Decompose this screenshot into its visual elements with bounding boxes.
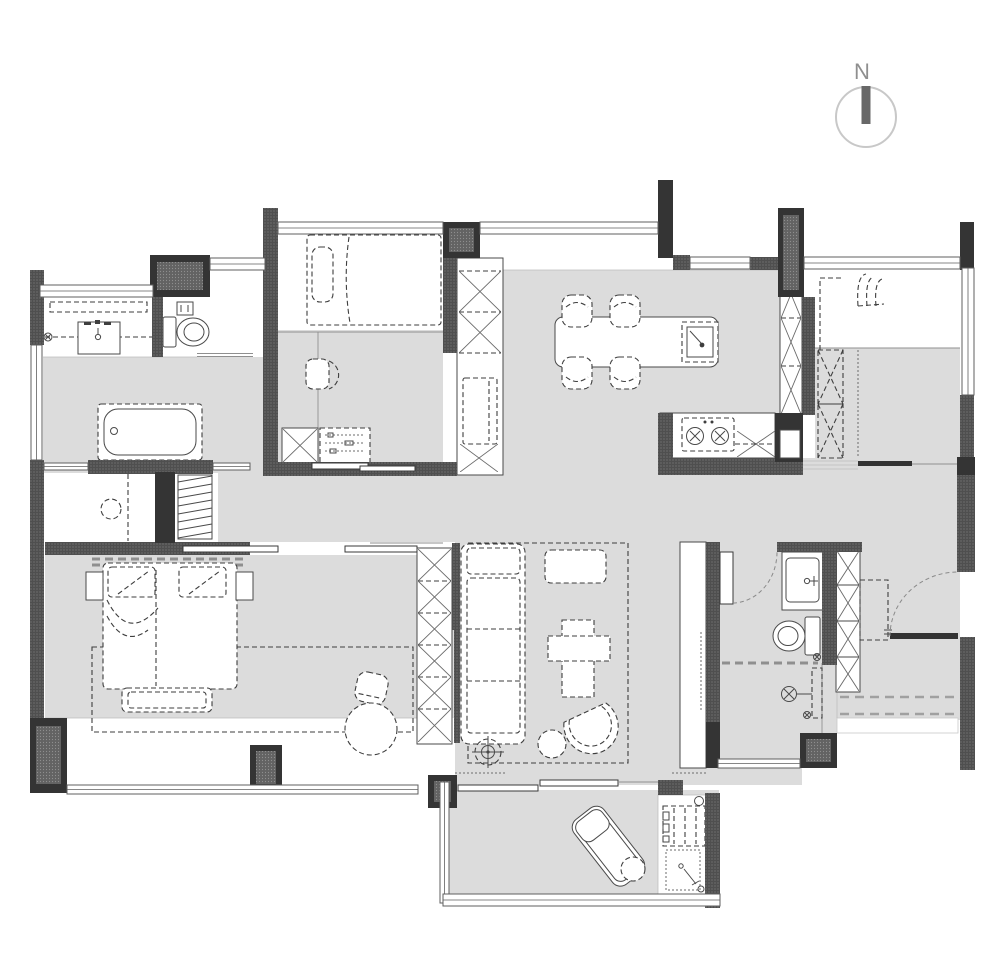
compass-north-label: N [854,59,870,84]
window-bedroom3-right [962,268,974,395]
entry-step-strip [837,718,958,733]
sofa-side-table [467,548,520,574]
window-dining [480,222,658,234]
small-armchair [858,274,884,306]
nightstand-right [236,572,253,600]
dresser-with-items [320,428,370,463]
island-sink [682,322,718,362]
bedroom2-sliding-leaf-2 [360,466,415,471]
track-dressing-right [213,463,250,470]
sofa [461,544,525,744]
mirror-cabinet [50,302,147,312]
cistern-button [177,302,193,315]
pillow [312,247,333,302]
bathtub [98,404,202,460]
master-sliding-leaf-1 [183,546,278,552]
round-pouf [345,703,397,755]
round-stool [101,499,121,519]
window-balcony-bottom [443,894,720,906]
round-ottoman [538,730,566,758]
round-side-table [621,857,645,881]
bathroom-top-left [44,302,209,354]
cabinet-dashed [463,378,497,444]
dining-chair-1 [562,295,592,327]
tall-storage-column [457,258,503,475]
floor-gap [443,353,457,463]
north-compass: N [836,59,896,147]
window-master-south [67,785,418,794]
pillow-right [179,567,226,597]
window-left [31,345,42,460]
pillow-left [108,567,155,597]
floor-bedroom3-lower [815,348,960,458]
track-dressing-left [44,463,88,470]
vanity-sink [782,552,823,610]
dining-chair-3 [562,357,592,389]
sliding-partition [680,542,706,768]
window-bedroom2 [278,222,443,234]
foot-bench [122,688,212,712]
window-bath-balcony [718,759,800,768]
window-balcony-left [440,782,449,903]
floor-plan-drawing: N [0,0,1000,960]
kitchen-duct [780,430,800,458]
floor-laundry [658,795,707,894]
cooktop-icon [682,418,734,451]
dining-chair-4 [610,357,640,389]
bedroom3-sliding-leaf [858,461,912,466]
window-bedroom3-top [804,257,960,269]
dining-chair-2 [610,295,640,327]
window-kitchen [690,257,750,269]
hanging-rack [178,475,212,539]
window-bath-tl [40,285,153,297]
master-wardrobe [417,548,452,744]
shoe-cabinet-x [836,550,860,692]
tv-bench [545,550,606,583]
toilet [163,302,209,347]
nightstand-left [86,572,103,600]
vanity-sink [78,322,120,354]
closet-outline [820,278,842,350]
floor-plan-page: N [0,0,1000,960]
compass-needle [862,86,871,124]
window-wc-tl [210,258,265,270]
master-sliding-leaf-2 [345,546,417,552]
